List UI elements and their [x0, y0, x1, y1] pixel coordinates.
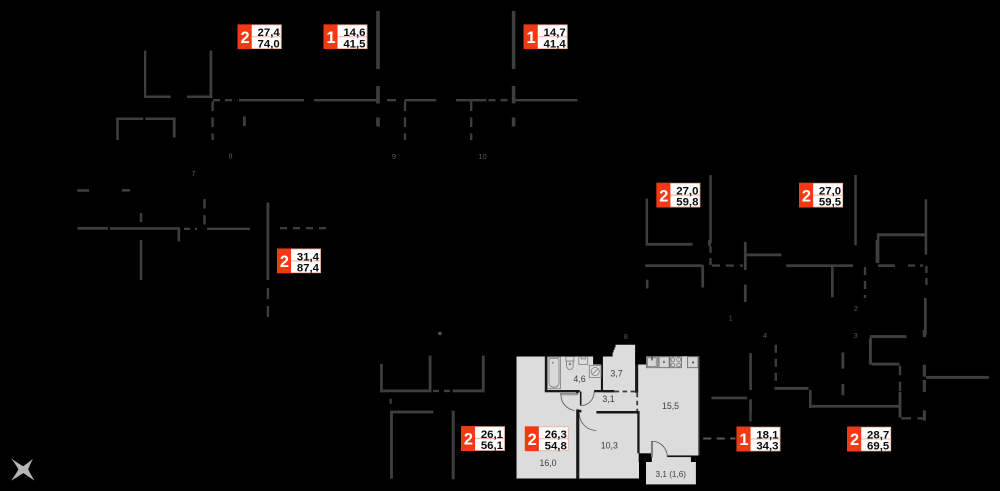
svg-text:59,8: 59,8: [676, 197, 698, 209]
svg-text:15,5: 15,5: [662, 401, 679, 411]
svg-text:56,1: 56,1: [481, 440, 504, 452]
svg-text:2: 2: [280, 253, 289, 271]
svg-text:74,0: 74,0: [258, 38, 280, 50]
svg-text:2: 2: [464, 431, 473, 449]
svg-text:41,5: 41,5: [343, 38, 366, 50]
svg-text:3,1 (1,6): 3,1 (1,6): [656, 470, 687, 479]
svg-text:41,4: 41,4: [544, 38, 567, 50]
svg-text:34,3: 34,3: [756, 441, 778, 453]
svg-text:59,5: 59,5: [819, 197, 842, 209]
svg-text:4,6: 4,6: [573, 374, 585, 384]
svg-text:2: 2: [659, 187, 668, 205]
svg-text:7: 7: [191, 169, 195, 178]
svg-text:3,1: 3,1: [602, 394, 614, 404]
svg-text:1: 1: [729, 314, 733, 323]
svg-text:8: 8: [624, 332, 628, 341]
svg-text:9: 9: [392, 152, 396, 161]
svg-text:2: 2: [854, 304, 858, 313]
svg-text:54,8: 54,8: [545, 440, 567, 452]
svg-text:1: 1: [326, 29, 335, 47]
svg-text:10,3: 10,3: [601, 440, 618, 450]
svg-text:69,5: 69,5: [867, 441, 890, 453]
svg-text:4: 4: [763, 331, 767, 340]
svg-text:87,4: 87,4: [297, 262, 320, 274]
svg-text:8: 8: [228, 152, 232, 161]
svg-text:1: 1: [527, 29, 536, 47]
svg-text:2: 2: [850, 431, 859, 449]
svg-text:2: 2: [241, 29, 250, 47]
svg-text:2: 2: [802, 187, 811, 205]
svg-text:16,0: 16,0: [539, 458, 556, 468]
svg-text:2: 2: [528, 431, 537, 449]
svg-text:1: 1: [739, 431, 748, 449]
svg-text:3,7: 3,7: [610, 368, 622, 378]
svg-text:10: 10: [478, 152, 486, 161]
svg-text:3: 3: [854, 331, 858, 340]
